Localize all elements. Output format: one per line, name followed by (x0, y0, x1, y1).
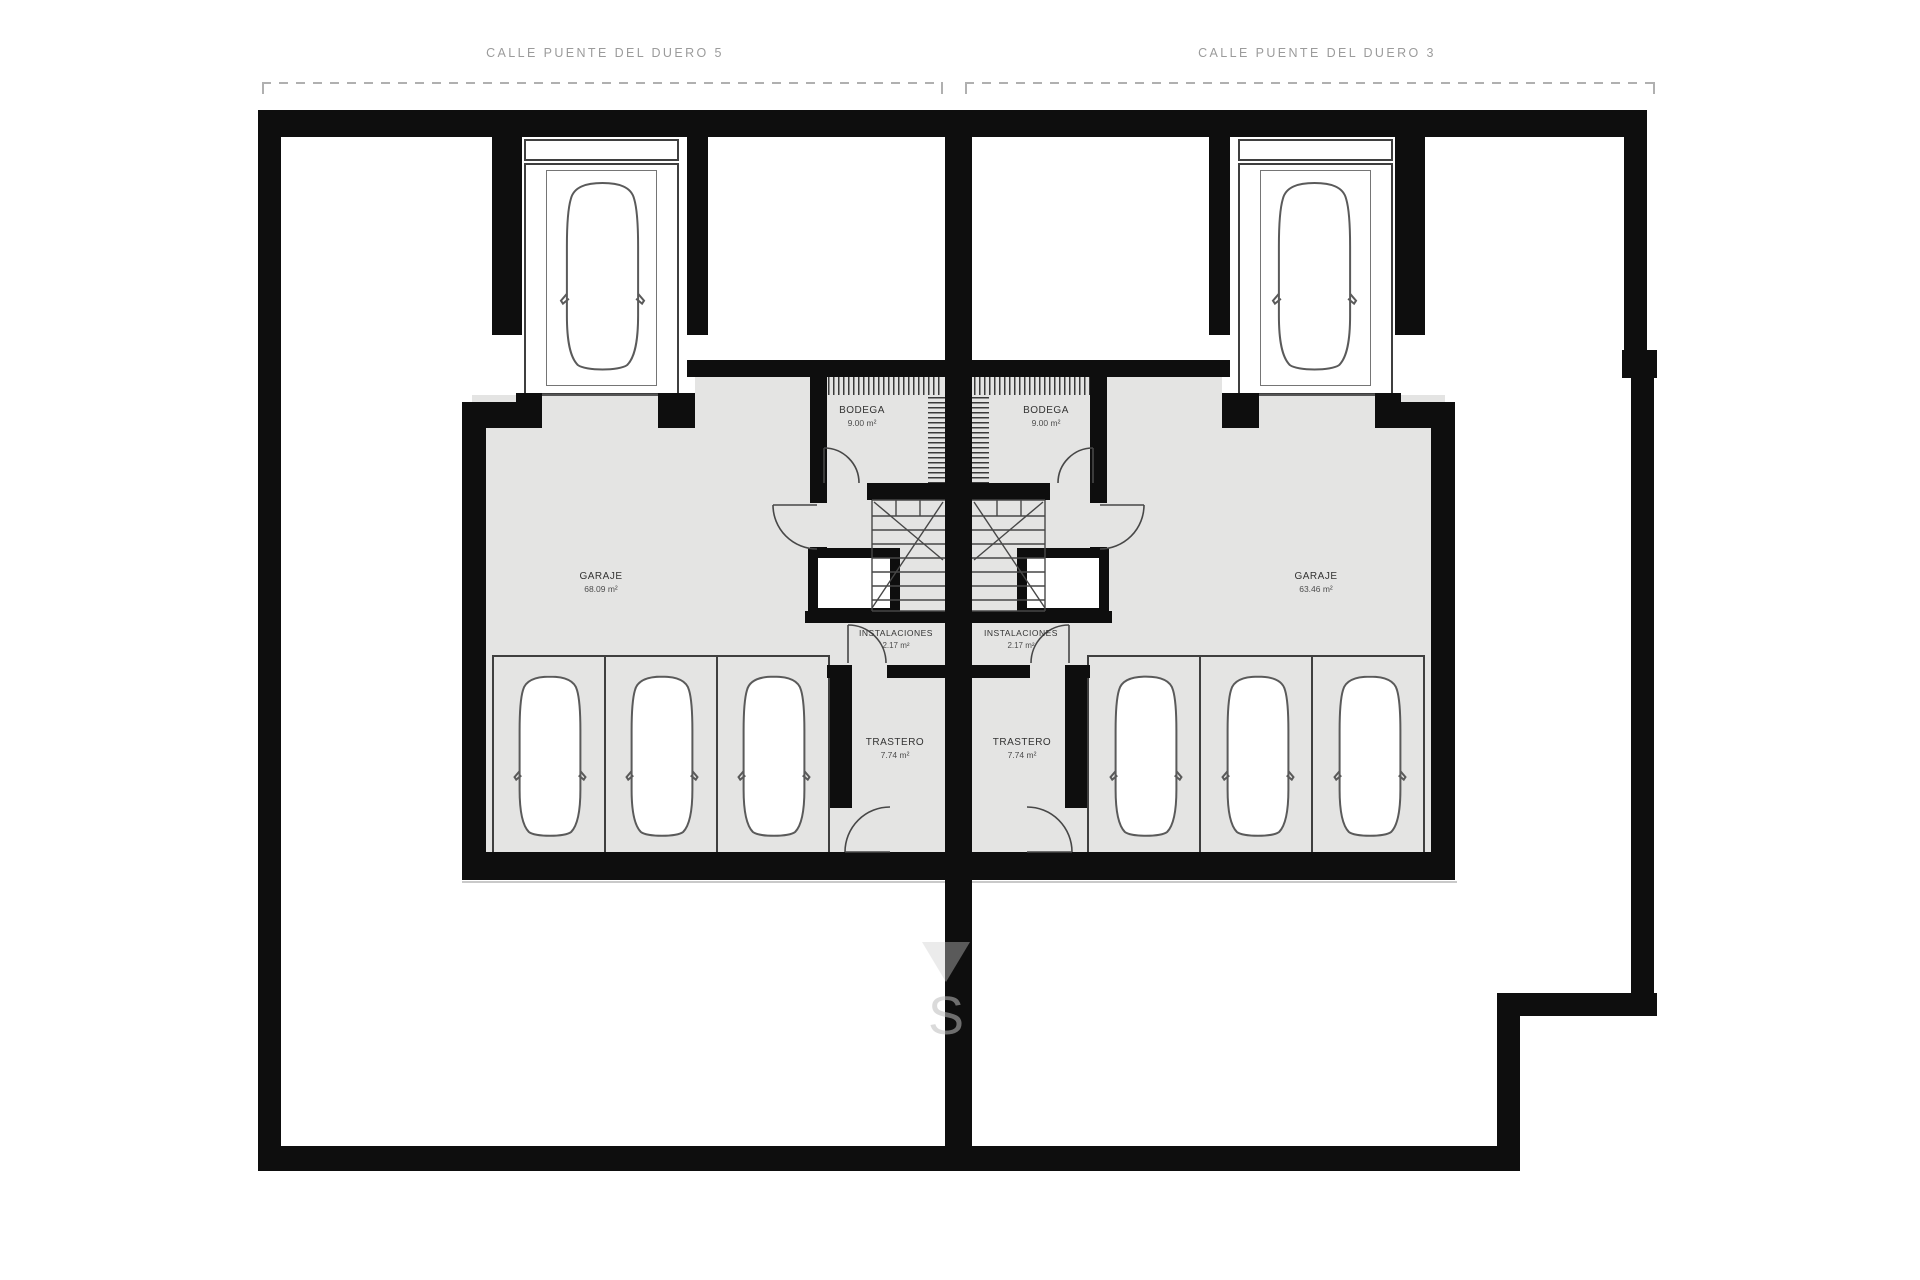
room-label-instalaciones-left: INSTALACIONES 2.17 m² (826, 628, 966, 651)
door-bodega-left (824, 448, 859, 483)
room-label-bodega-right: BODEGA 9.00 m² (986, 404, 1106, 430)
door-landing-left (773, 505, 817, 549)
car-ramp-vehicle-left (561, 183, 644, 369)
parked-car (1335, 677, 1406, 836)
watermark-triangle-icon (922, 942, 970, 982)
room-label-garaje-right: GARAJE 63.46 m² (1255, 570, 1377, 596)
parked-car (1223, 677, 1294, 836)
watermark-letter: S (928, 985, 964, 1047)
car-ramp-vehicle-right (1273, 183, 1356, 369)
staircase-right (972, 500, 1045, 611)
room-label-trastero-right: TRASTERO 7.74 m² (962, 736, 1082, 762)
staircase-left (872, 500, 945, 611)
parked-car (739, 677, 810, 836)
door-trastero-left (845, 807, 890, 852)
room-label-trastero-left: TRASTERO 7.74 m² (835, 736, 955, 762)
parked-car (515, 677, 586, 836)
floor-plan-canvas: CALLE PUENTE DEL DUERO 5 CALLE PUENTE DE… (0, 0, 1920, 1280)
door-trastero-right (1027, 807, 1072, 852)
door-bodega-right (1058, 448, 1093, 483)
parked-car (627, 677, 698, 836)
room-label-garaje-left: GARAJE 68.09 m² (540, 570, 662, 596)
parked-car (1111, 677, 1182, 836)
room-label-bodega-left: BODEGA 9.00 m² (802, 404, 922, 430)
door-landing-right (1100, 505, 1144, 549)
room-label-instalaciones-right: INSTALACIONES 2.17 m² (951, 628, 1091, 651)
